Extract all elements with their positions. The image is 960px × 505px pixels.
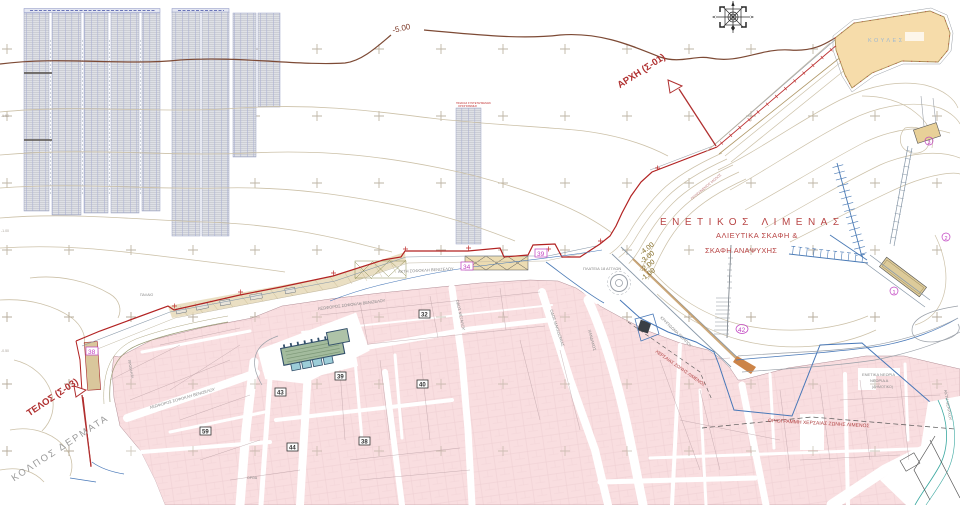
svg-text:40: 40: [419, 383, 426, 389]
svg-text:39: 39: [337, 375, 344, 381]
svg-text:ΟΡΘΑ: ΟΡΘΑ: [247, 476, 258, 480]
svg-text:39: 39: [537, 251, 545, 258]
svg-text:1: 1: [893, 290, 896, 296]
svg-text:43: 43: [277, 391, 284, 397]
svg-text:ΠΑΛΑΙΟ: ΠΑΛΑΙΟ: [140, 293, 154, 297]
svg-text:ΑΛΙΕΥΤΙΚΑ ΣΚΑΦΗ &: ΑΛΙΕΥΤΙΚΑ ΣΚΑΦΗ &: [716, 231, 798, 240]
svg-text:32: 32: [421, 313, 428, 319]
svg-text:(ΔΗΜΟΤΙΚΟ): (ΔΗΜΟΤΙΚΟ): [872, 385, 893, 389]
svg-text:ΕΝΕΤΙΚΟΣ ΛΙΜΕΝΑΣ: ΕΝΕΤΙΚΟΣ ΛΙΜΕΝΑΣ: [660, 217, 845, 228]
svg-text:ΠΛΑΤΕΙΑ 18 ΑΓΓΛΩΝ: ΠΛΑΤΕΙΑ 18 ΑΓΓΛΩΝ: [583, 266, 621, 271]
svg-text:-0.50: -0.50: [1, 349, 9, 353]
svg-text:3: 3: [928, 140, 931, 146]
svg-text:34: 34: [463, 264, 471, 271]
svg-text:ΝΕΩΡΙΑ Α: ΝΕΩΡΙΑ Α: [870, 378, 889, 383]
svg-text:ΚΟΥΛΕΣ: ΚΟΥΛΕΣ: [868, 38, 905, 44]
svg-text:44: 44: [289, 446, 296, 452]
svg-text:-1.00: -1.00: [1, 229, 9, 233]
svg-text:2: 2: [945, 236, 948, 242]
svg-text:38: 38: [88, 349, 96, 356]
svg-text:ΕΝΕΤΙΚΑ ΝΕΩΡΙΑ: ΕΝΕΤΙΚΑ ΝΕΩΡΙΑ: [862, 372, 895, 377]
svg-text:38: 38: [361, 440, 368, 446]
svg-text:ΟΡΙΟΓΡΑΜΜΗΣ: ΟΡΙΟΓΡΑΜΜΗΣ: [458, 104, 477, 108]
svg-text:59: 59: [202, 430, 209, 436]
svg-text:42: 42: [738, 327, 746, 334]
svg-text:-1.50: -1.50: [1, 114, 9, 118]
svg-text:ΣΚΑΦΗ ΑΝΑΨΥΧΗΣ: ΣΚΑΦΗ ΑΝΑΨΥΧΗΣ: [705, 246, 777, 255]
